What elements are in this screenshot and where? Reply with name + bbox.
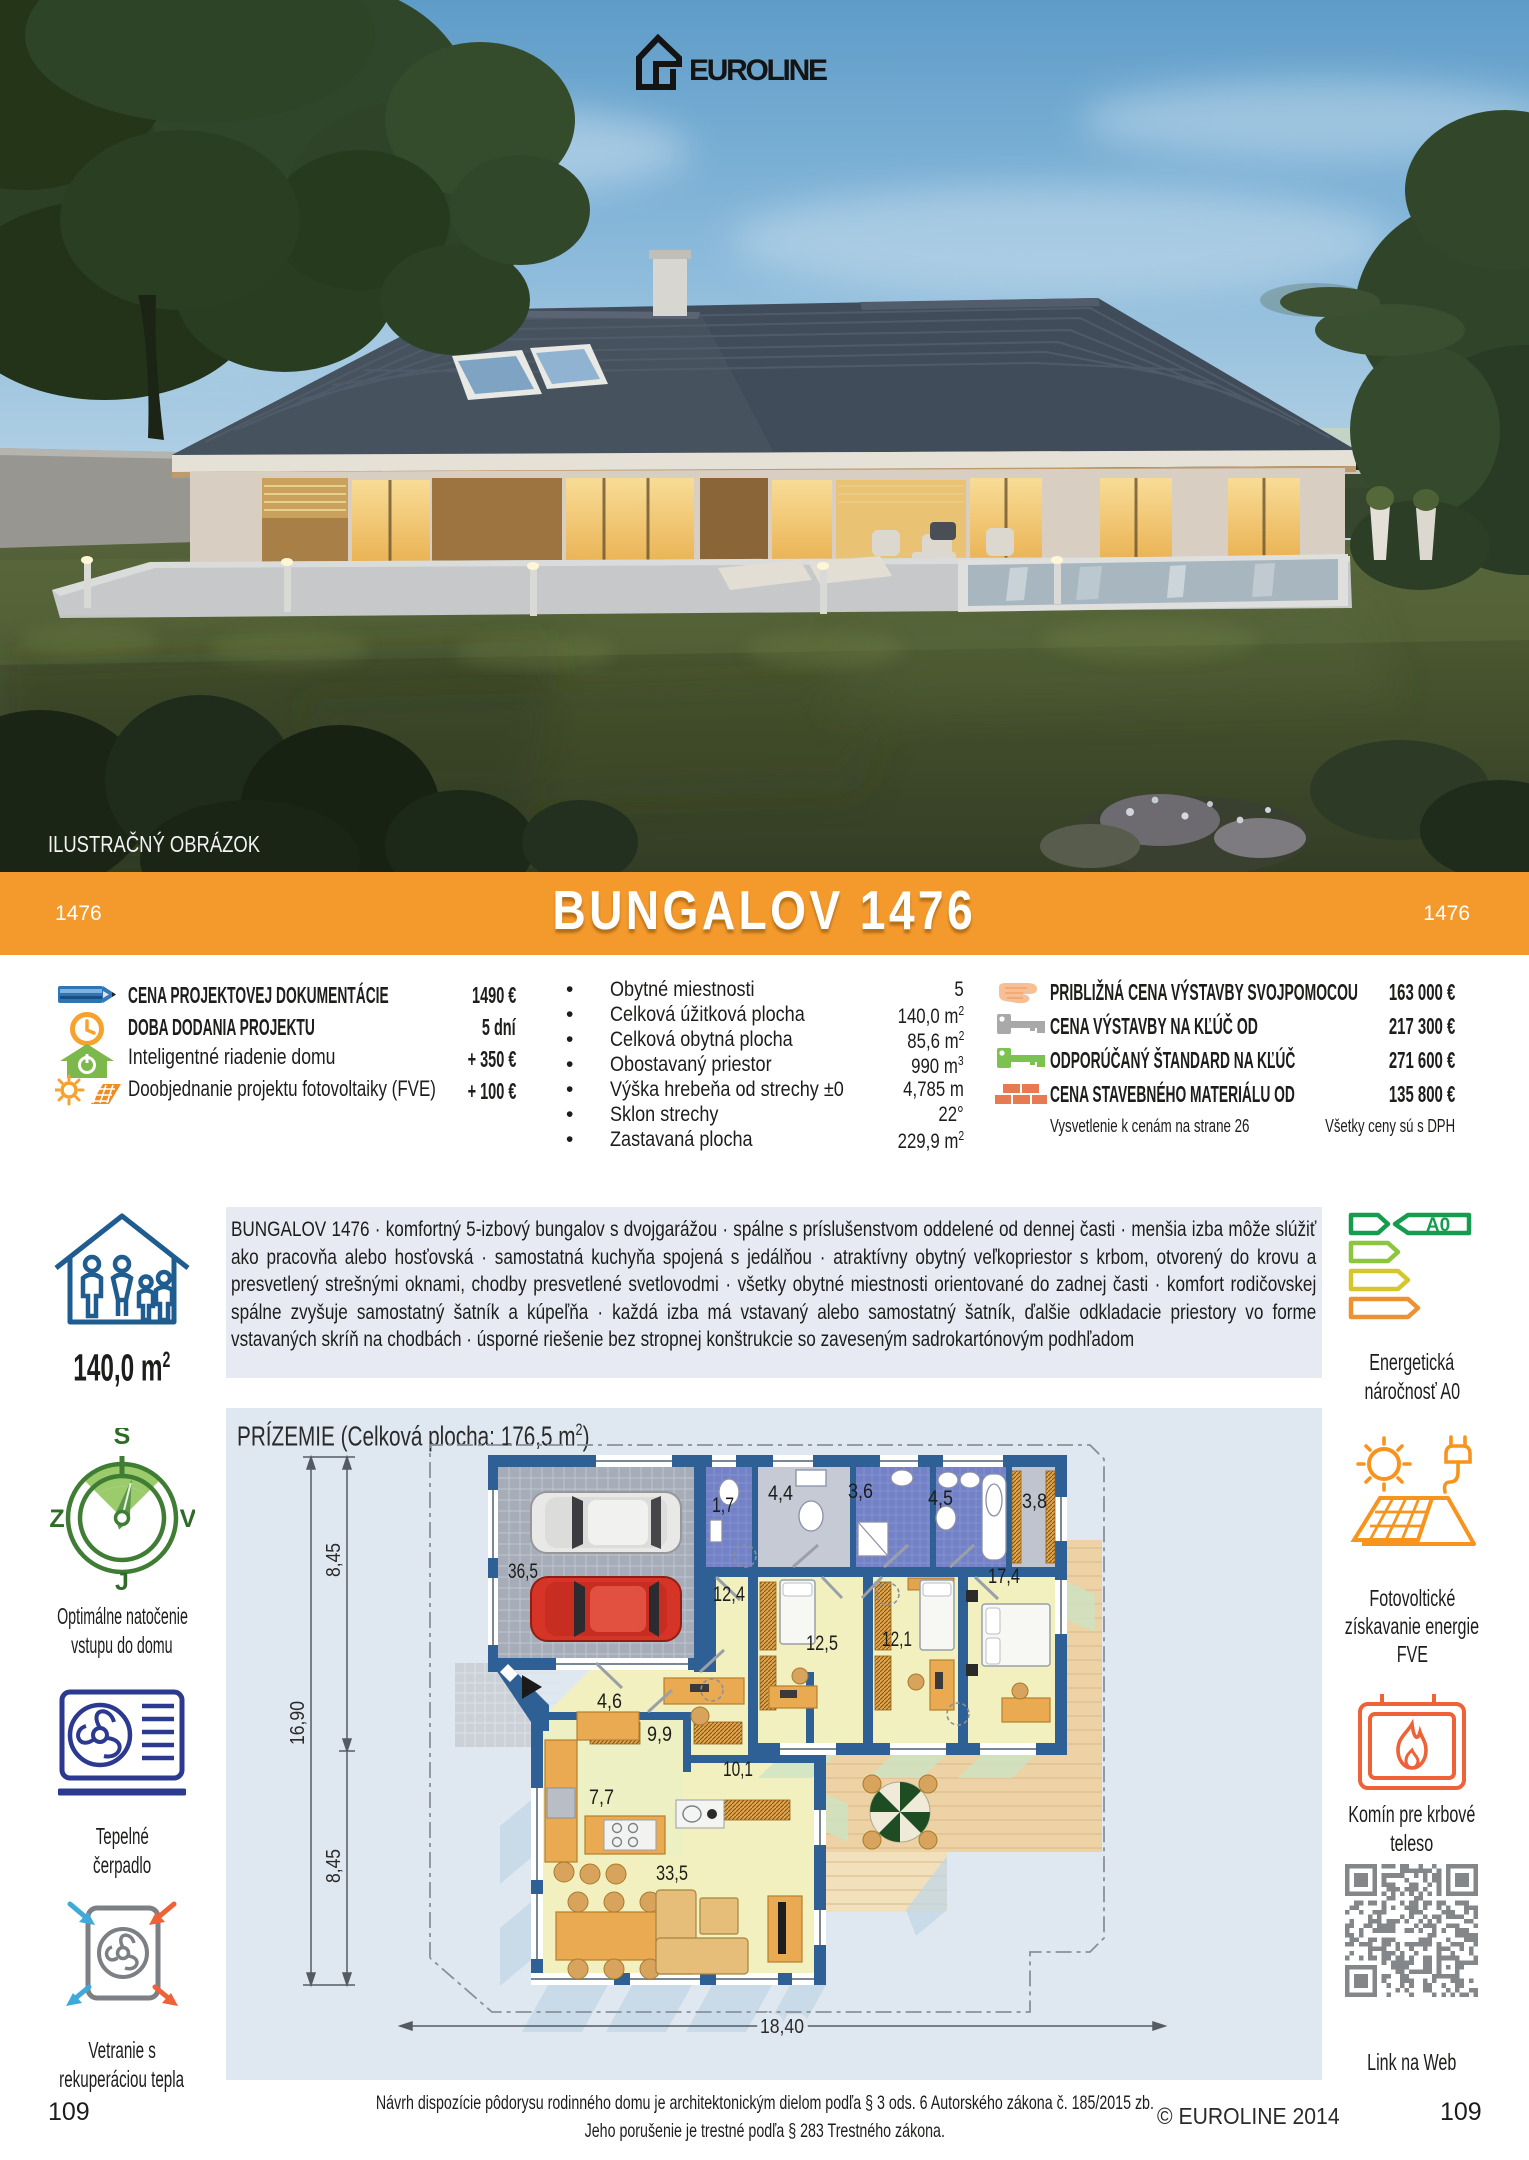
svg-text:A0: A0 <box>1426 1215 1450 1236</box>
svg-text:S: S <box>114 1428 131 1450</box>
svg-text:17,4: 17,4 <box>988 1565 1020 1588</box>
svg-text:V: V <box>180 1505 195 1533</box>
svg-text:1,7: 1,7 <box>712 1494 734 1517</box>
svg-text:J: J <box>115 1568 129 1596</box>
svg-text:3,6: 3,6 <box>848 1480 873 1503</box>
svg-text:12,1: 12,1 <box>882 1628 912 1651</box>
svg-text:10,1: 10,1 <box>723 1758 753 1781</box>
svg-text:3,8: 3,8 <box>1022 1490 1047 1513</box>
svg-text:36,5: 36,5 <box>508 1560 538 1583</box>
svg-text:8,45: 8,45 <box>323 1849 345 1883</box>
svg-text:4,6: 4,6 <box>597 1690 622 1713</box>
svg-text:7,7: 7,7 <box>589 1786 614 1809</box>
svg-text:Z: Z <box>50 1505 65 1533</box>
svg-text:8,45: 8,45 <box>323 1543 345 1577</box>
svg-text:18,40: 18,40 <box>760 2016 804 2038</box>
svg-text:12,5: 12,5 <box>806 1632 838 1655</box>
svg-text:9,9: 9,9 <box>647 1723 672 1746</box>
svg-text:12,4: 12,4 <box>713 1583 745 1606</box>
svg-text:ILUSTRAČNÝ OBRÁZOK: ILUSTRAČNÝ OBRÁZOK <box>48 830 261 857</box>
svg-text:33,5: 33,5 <box>656 1862 688 1885</box>
svg-text:16,90: 16,90 <box>287 1701 309 1745</box>
svg-text:4,5: 4,5 <box>928 1487 953 1510</box>
svg-text:EUROLINE: EUROLINE <box>689 54 828 87</box>
svg-text:4,4: 4,4 <box>768 1482 793 1505</box>
